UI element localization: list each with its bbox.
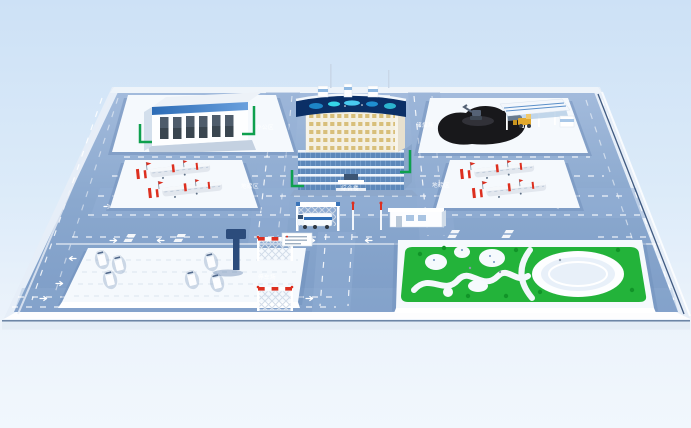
garden-park — [392, 240, 658, 313]
label-coal-yard: 储煤场 — [416, 121, 434, 129]
label-office-area: 办公区 — [256, 123, 274, 131]
notice-board — [282, 233, 312, 246]
garden-plaza-oval — [532, 251, 624, 297]
site-model-canvas: 办公区 储煤场 地磅区 地磅区 综合楼 停车场 — [0, 0, 691, 428]
office-building — [290, 95, 418, 197]
label-main-building: 综合楼 — [341, 184, 359, 192]
label-weighbridge-left: 地磅区 — [241, 182, 259, 190]
site-3d-view: 办公区 储煤场 地磅区 地磅区 综合楼 停车场 — [0, 0, 691, 428]
guard-building — [388, 208, 446, 227]
label-weighbridge-right: 地磅区 — [432, 181, 450, 189]
label-parking-lot: 停车场 — [258, 273, 276, 281]
conveyor-tower-2 — [257, 286, 294, 311]
